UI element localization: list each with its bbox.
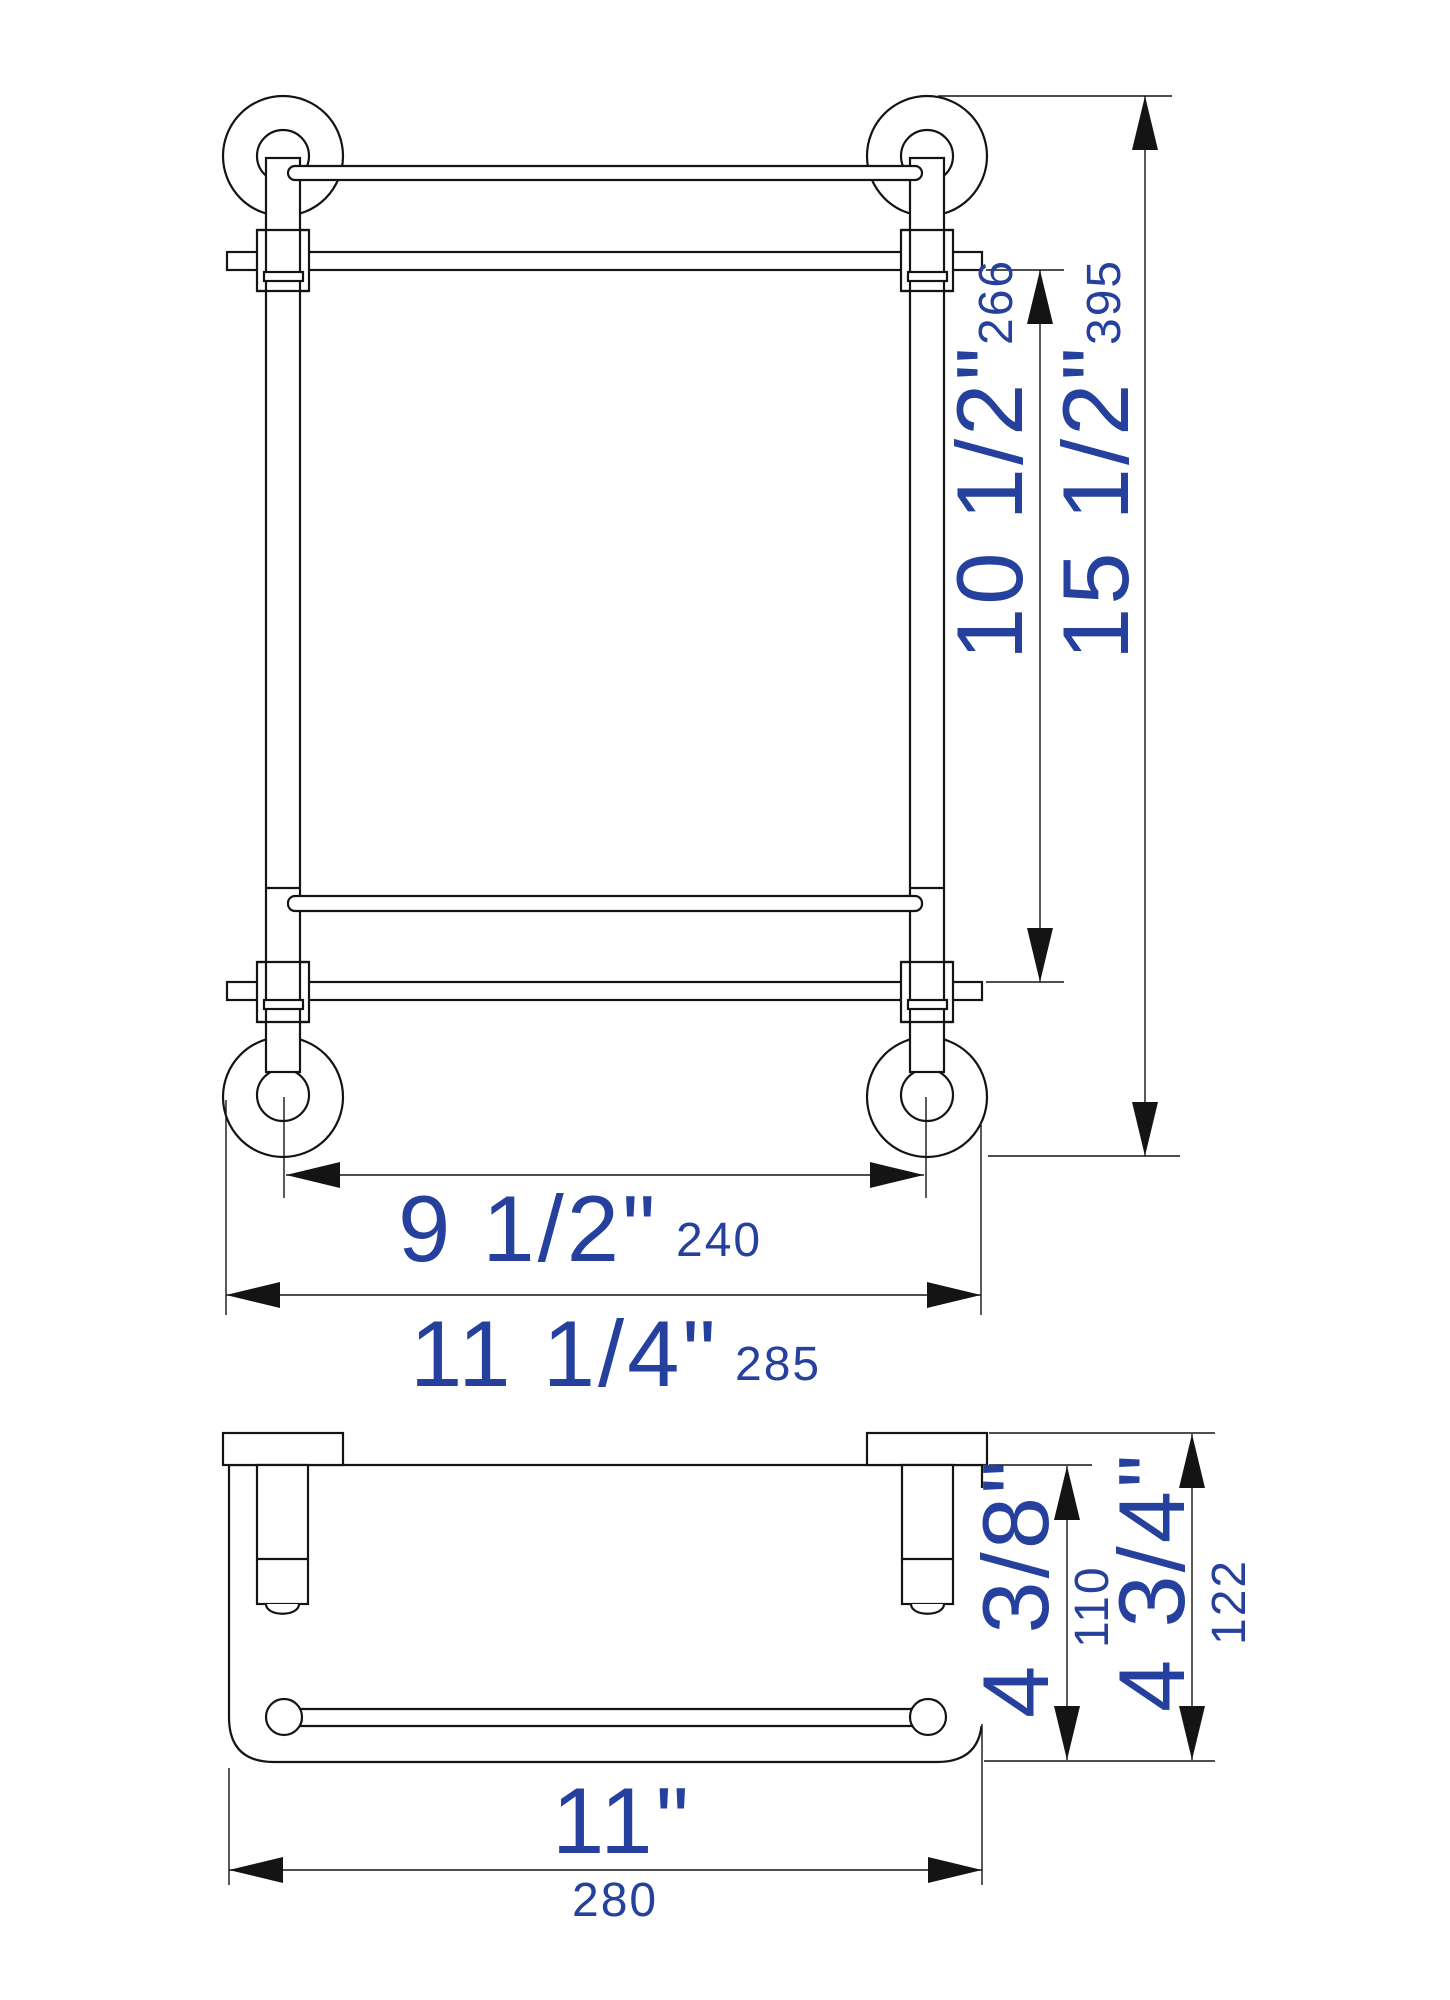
label-shelf-width-inches: 11" (552, 1768, 692, 1873)
arrow-right-icon (928, 1857, 982, 1883)
wall-plate-left (223, 1433, 343, 1465)
label-shelf-width-mm: 280 (572, 1874, 658, 1927)
arrow-left-icon (286, 1162, 340, 1188)
label-overall-depth-mm: 122 (1203, 1559, 1256, 1645)
label-overall-height-mm: 395 (1078, 259, 1131, 345)
label-shelf-spacing-mm: 266 (970, 259, 1023, 345)
towel-bar-end-left (266, 1699, 302, 1735)
front-view (223, 96, 987, 1157)
towel-rail-top (288, 166, 922, 180)
drawing-page: 10 1/2" 266 15 1/2" 395 9 1/2" 240 11 1/… (0, 0, 1450, 2000)
towel-bar-end-right (910, 1699, 946, 1735)
arrow-down-icon (1027, 928, 1053, 982)
side-view (223, 1433, 1062, 1762)
shelf-body-profile (229, 1465, 982, 1762)
clamp-jaw-lower-left (264, 1000, 303, 1009)
label-shelf-spacing-inches: 10 1/2" (937, 344, 1042, 660)
label-post-centers-mm: 240 (676, 1214, 762, 1267)
bracket-end-dome-left (266, 1604, 299, 1614)
clamp-jaw-lower-right (908, 1000, 947, 1009)
flange-inner-circle (901, 1069, 953, 1121)
bracket-post-right (902, 1465, 953, 1604)
flange-inner-circle (257, 1069, 309, 1121)
label-post-centers-inches: 9 1/2" (398, 1176, 658, 1281)
arrow-left-icon (226, 1282, 280, 1308)
arrow-up-icon (1132, 96, 1158, 150)
mounting-post-left (266, 158, 300, 1072)
arrow-right-icon (870, 1162, 924, 1188)
bracket-post-left (257, 1465, 308, 1604)
arrow-down-icon (1179, 1706, 1205, 1760)
label-overall-width-mm: 285 (735, 1338, 821, 1391)
arrow-up-icon (1027, 270, 1053, 324)
label-overall-height-inches: 15 1/2" (1043, 344, 1148, 660)
lower-glass-shelf (227, 982, 982, 1000)
arrow-down-icon (1132, 1102, 1158, 1156)
clamp-jaw-upper-left (264, 272, 303, 281)
arrow-right-icon (927, 1282, 981, 1308)
arrow-left-icon (229, 1857, 283, 1883)
clamp-jaw-upper-right (908, 272, 947, 281)
technical-drawing: 10 1/2" 266 15 1/2" 395 9 1/2" 240 11 1/… (0, 0, 1450, 2000)
towel-rail-bottom (288, 896, 922, 911)
label-overall-width-inches: 11 1/4" (410, 1301, 719, 1406)
bracket-end-dome-right (911, 1604, 944, 1614)
label-overall-depth-inches: 4 3/4" (1099, 1452, 1204, 1712)
label-shelf-depth-inches: 4 3/8" (963, 1458, 1068, 1718)
upper-glass-shelf (227, 252, 982, 270)
